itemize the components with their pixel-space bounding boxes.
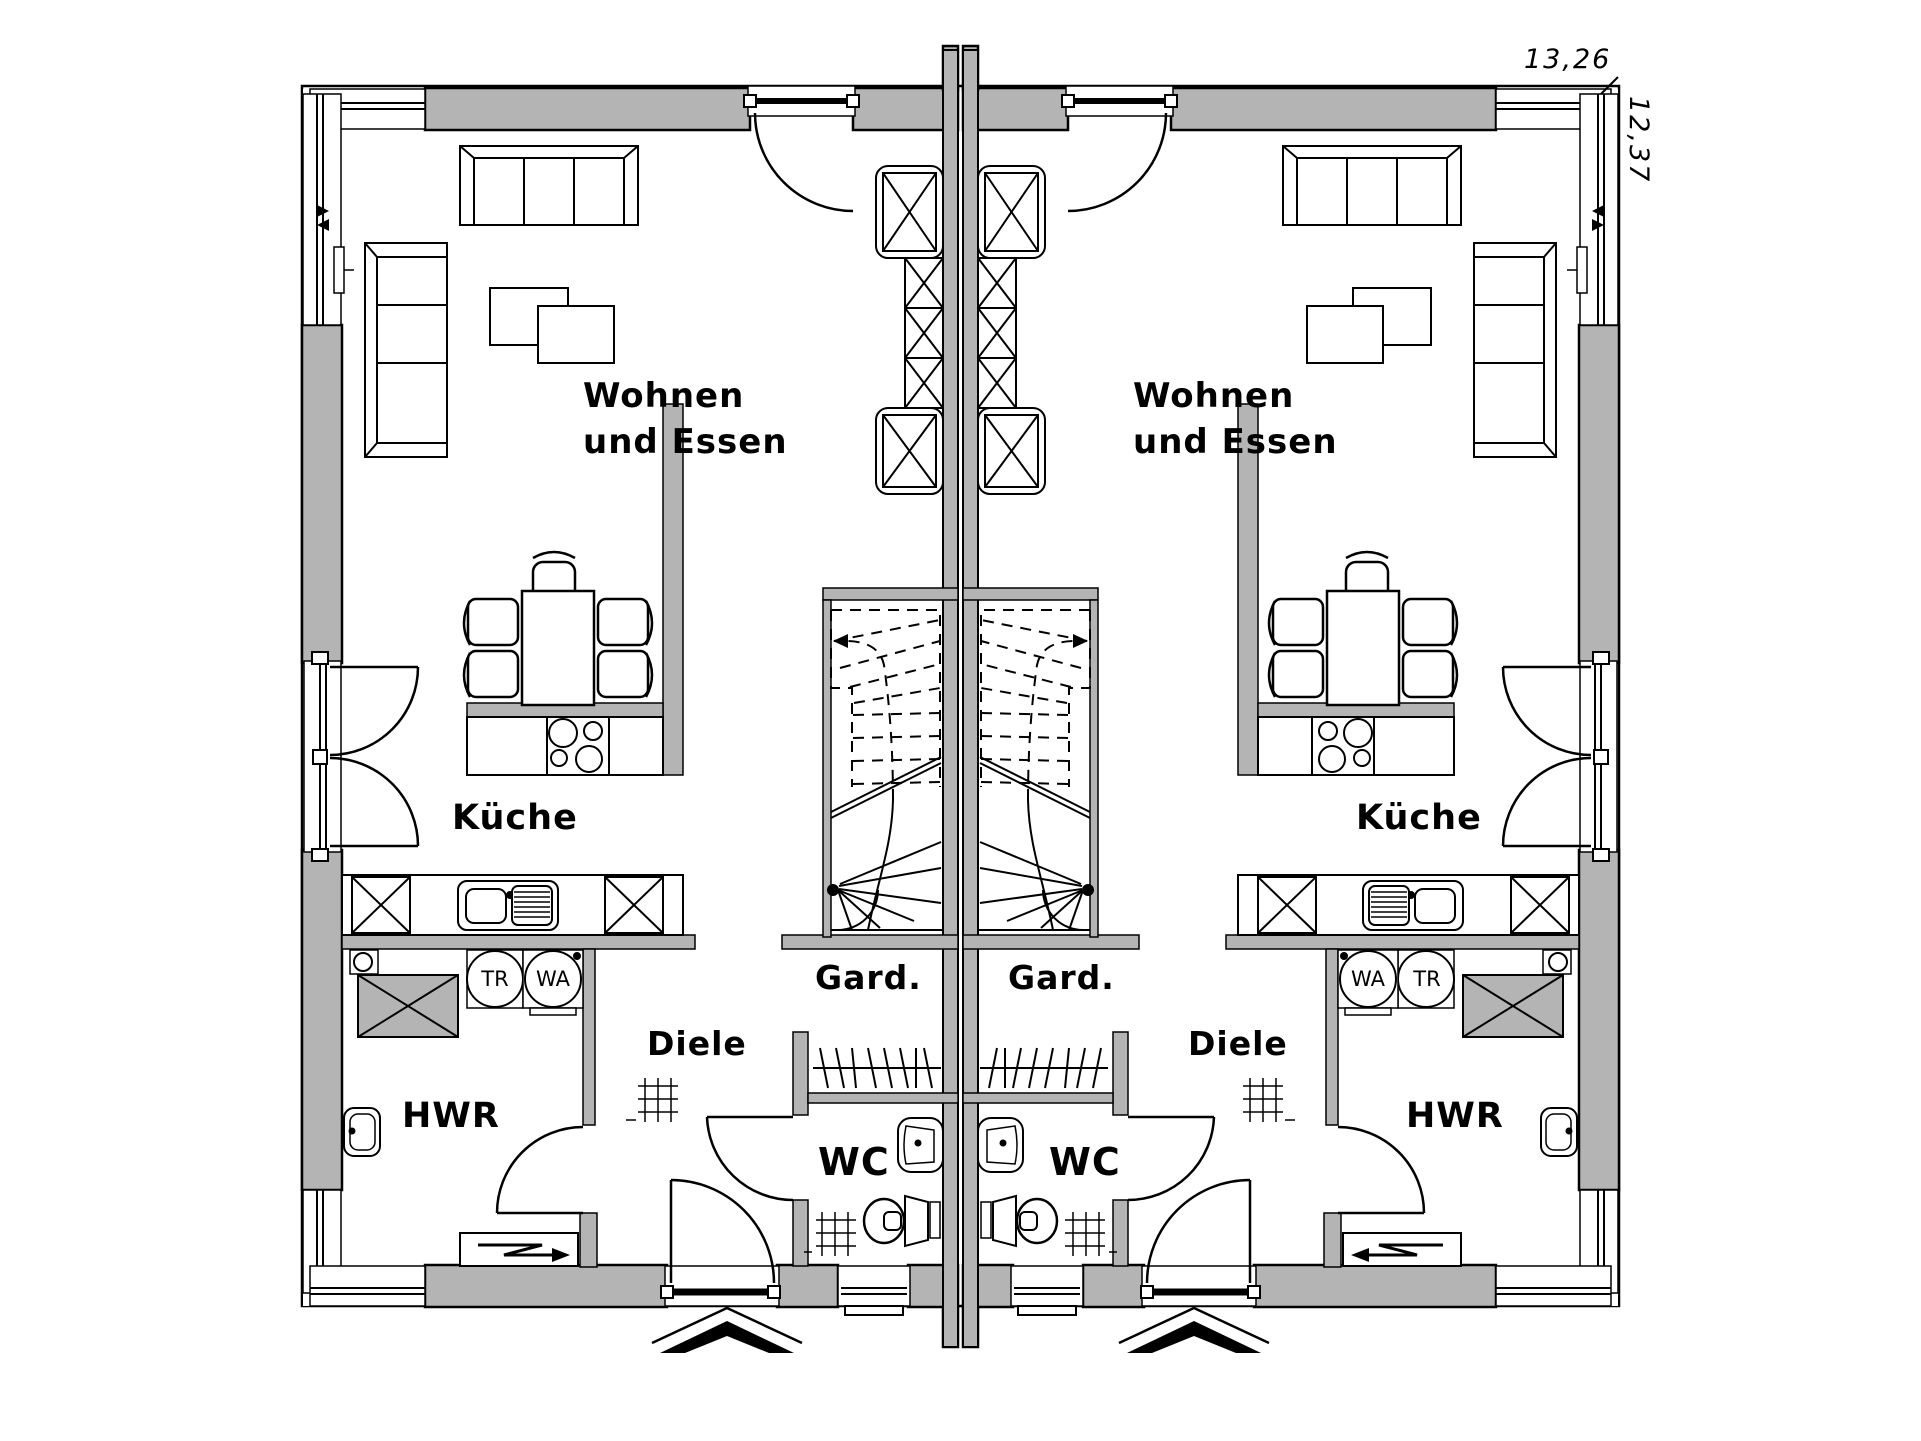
unit-right: [963, 46, 1619, 1353]
floor-plan: Wohnen und Essen Wohnen und Essen Küche …: [0, 0, 1921, 1441]
floor-plan-drawing: [0, 0, 1921, 1441]
unit-left: [302, 46, 958, 1353]
